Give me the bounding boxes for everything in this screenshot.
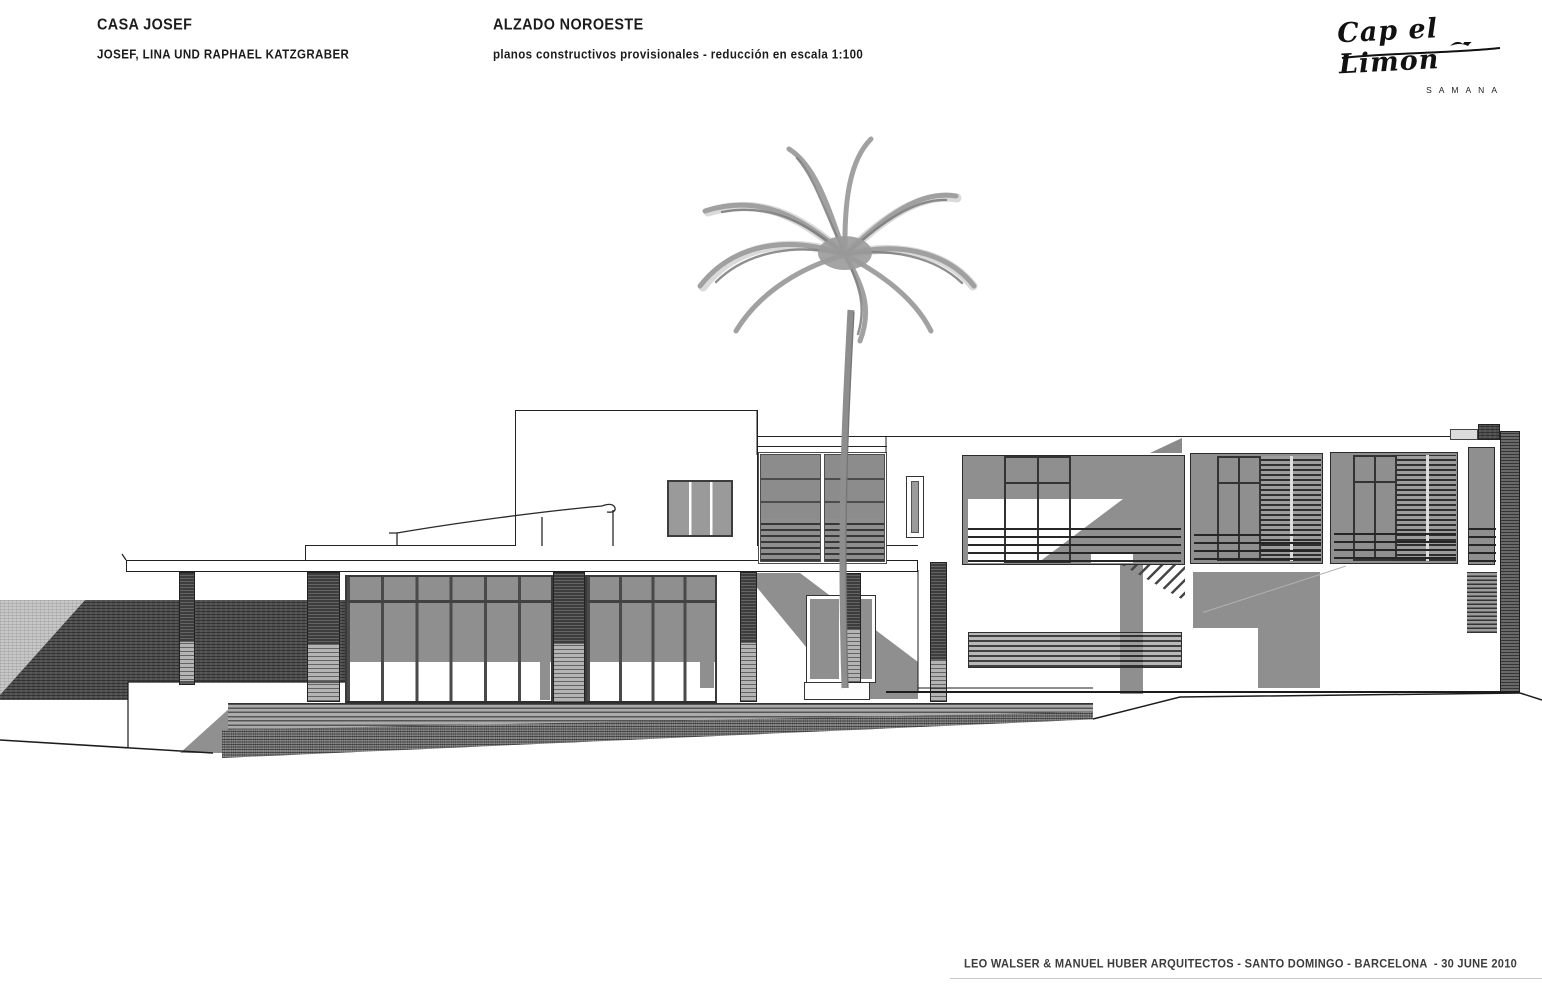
bay-b-railing (1194, 528, 1321, 560)
parapet-line-lower (757, 446, 887, 447)
stone-pillar (307, 572, 340, 702)
stairwell-window-right-leaf (824, 454, 885, 562)
grey-wall-band (1120, 565, 1143, 694)
glass-wall-section-1 (345, 575, 553, 703)
stairwell-window (758, 452, 887, 564)
three-pane-window (667, 480, 733, 537)
shadowed-wall (1193, 572, 1320, 688)
louver-vent (1467, 572, 1497, 633)
footer-rule (950, 978, 1542, 979)
slot-window (906, 476, 924, 538)
upper-bay-b (1190, 453, 1323, 564)
bay-d-railing (1469, 526, 1496, 562)
glass-wall-section-2 (585, 575, 717, 703)
louver-bench (968, 632, 1182, 668)
entry-step (804, 682, 870, 700)
upper-bay-c (1330, 452, 1458, 564)
stone-pillar-entry (845, 573, 861, 683)
slot-window-glass (911, 481, 919, 533)
stone-pillar (553, 572, 585, 703)
upper-bay-d (1468, 447, 1495, 565)
upper-bay-a (962, 455, 1185, 565)
drawing-sheet: CASA JOSEF JOSEF, LINA UND RAPHAEL KATZG… (0, 0, 1542, 986)
parapet-cap-light (1450, 429, 1478, 440)
entry-door (806, 595, 876, 683)
bay-c-railing (1334, 528, 1456, 559)
parapet-line (757, 436, 1452, 437)
bay-a-railing (968, 528, 1181, 562)
stone-pillar (740, 572, 757, 702)
open-door-shadow (540, 660, 550, 700)
stone-end-column (1500, 431, 1520, 693)
sunlit-notch (1193, 628, 1258, 688)
open-door-shadow (700, 660, 714, 688)
stone-pillar (179, 572, 195, 685)
parapet-cap-stone (1478, 424, 1500, 440)
stone-pillar-corner (930, 562, 947, 702)
stairwell-window-left-leaf (760, 454, 821, 562)
footer-credit: LEO WALSER & MANUEL HUBER ARQUITECTOS - … (964, 958, 1487, 970)
